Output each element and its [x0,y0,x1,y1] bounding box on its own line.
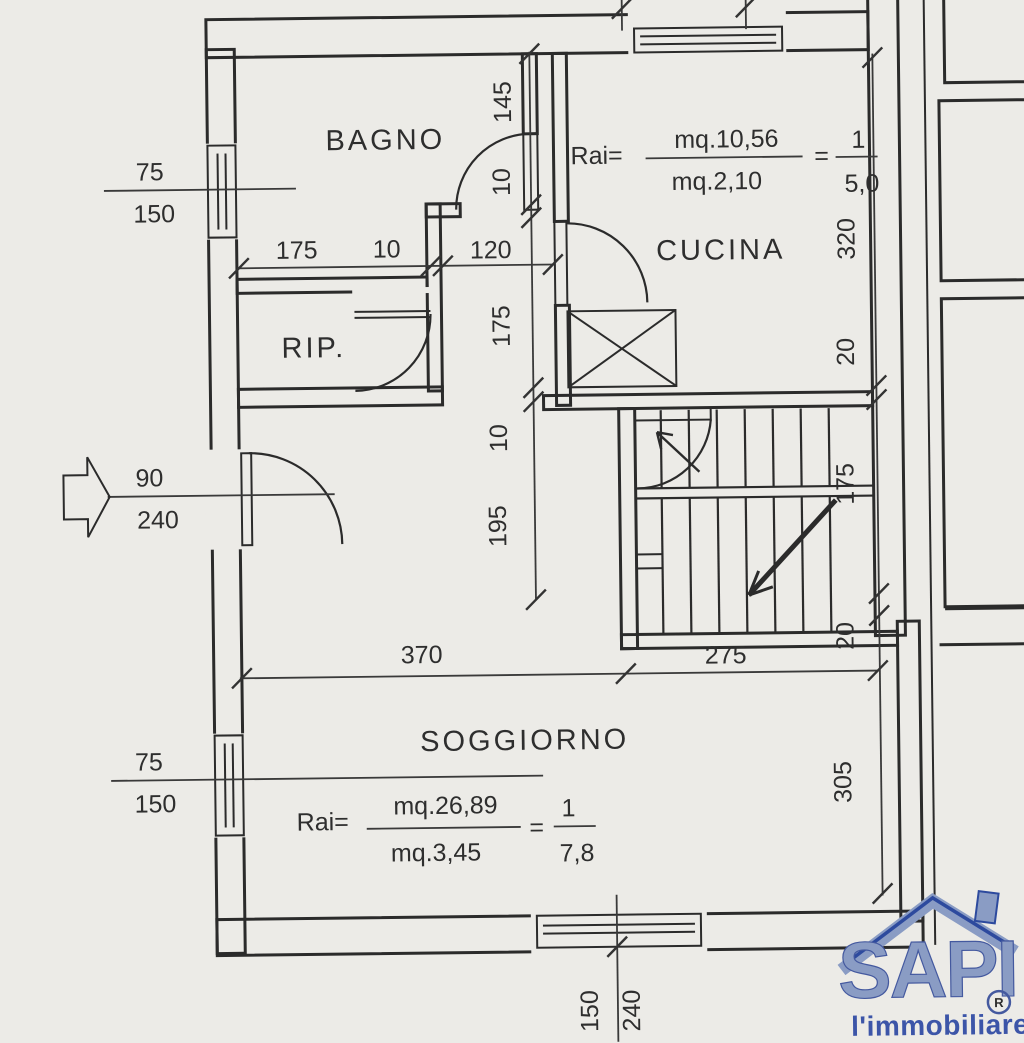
dim-door-height: 240 [137,506,179,535]
dim-bagno-width: 175 [276,236,318,265]
dim-v10b: 10 [485,424,513,452]
dim-v145: 145 [489,81,518,123]
dim-v10a: 10 [488,168,516,196]
dim-bottom-window-240: 240 [618,990,647,1032]
shaft-box [567,310,676,387]
logo-brand: SAPI [838,924,1018,1015]
dim-stairs-175: 175 [831,463,860,505]
room-label-cucina: CUCINA [656,234,786,268]
plan-group: 75 150 175 10 120 145 10 175 10 195 [58,0,1024,1043]
room-label-soggiorno: SOGGIORNO [420,724,629,759]
rai-numerator: mq.10,56 [674,125,779,154]
registered-letter: R [994,995,1004,1010]
room-label-rip: RIP. [281,332,346,365]
dim-soggiorno-275: 275 [705,641,747,670]
dim-bagno-window-width: 75 [136,158,164,186]
dim-r20a: 20 [832,338,860,366]
rai-denominator: mq.3,45 [391,838,482,867]
dim-v195: 195 [484,505,513,547]
wall-lower-right [897,621,923,921]
rip-door [354,311,431,391]
dim-r20b: 20 [831,622,859,650]
dim-v175: 175 [487,305,516,347]
rai-equals: = [529,814,544,842]
dim-bagno-window-height: 150 [133,200,175,229]
rai-result-den: 5,0 [844,169,879,197]
sapi-logo: SAPI R l'immobiliare [837,890,1024,1042]
stairs-lower-treads [662,496,832,634]
dim-corridor-width: 120 [470,236,512,265]
rai-equals: = [814,142,829,170]
rai-result-num: 1 [851,126,865,154]
entrance-door [241,452,342,545]
entrance-arrow [63,457,110,538]
dim-bottom-window-150: 150 [576,990,605,1032]
rai-formula-cucina: Rai= mq.10,56 mq.2,10 = 1 5,0 [570,123,879,201]
dim-sogg-window-height: 150 [134,790,176,819]
windows [206,27,793,952]
rai-result-num: 1 [561,794,575,822]
logo-tagline: l'immobiliare [851,1009,1024,1042]
rai-label: Rai= [297,808,349,837]
wall-rip-bottom [238,387,442,407]
dim-r320: 320 [832,218,861,260]
rai-numerator: mq.26,89 [393,791,498,820]
rai-denominator: mq.2,10 [672,167,763,196]
dim-sogg-window-width: 75 [135,748,163,776]
wall-cucina-left-upper [552,53,568,221]
dim-door-width: 90 [135,464,163,492]
dim-soggiorno-370: 370 [401,641,443,670]
rai-result-den: 7,8 [560,839,595,867]
dim-r305: 305 [829,761,858,803]
rai-label: Rai= [570,142,622,171]
room-label-bagno: BAGNO [325,124,445,157]
dim-wall-10: 10 [373,235,401,263]
floor-plan-svg: 75 150 175 10 120 145 10 175 10 195 [0,0,1024,1043]
staircase [619,405,898,648]
wall-bagno-right [426,204,442,391]
floor-plan-scan: 75 150 175 10 120 145 10 175 10 195 [0,0,1024,1043]
logo-chimney [975,891,999,923]
rai-formula-soggiorno: Rai= mq.26,89 mq.3,45 = 1 7,8 [296,790,596,871]
neighbor-walls [923,0,1024,945]
